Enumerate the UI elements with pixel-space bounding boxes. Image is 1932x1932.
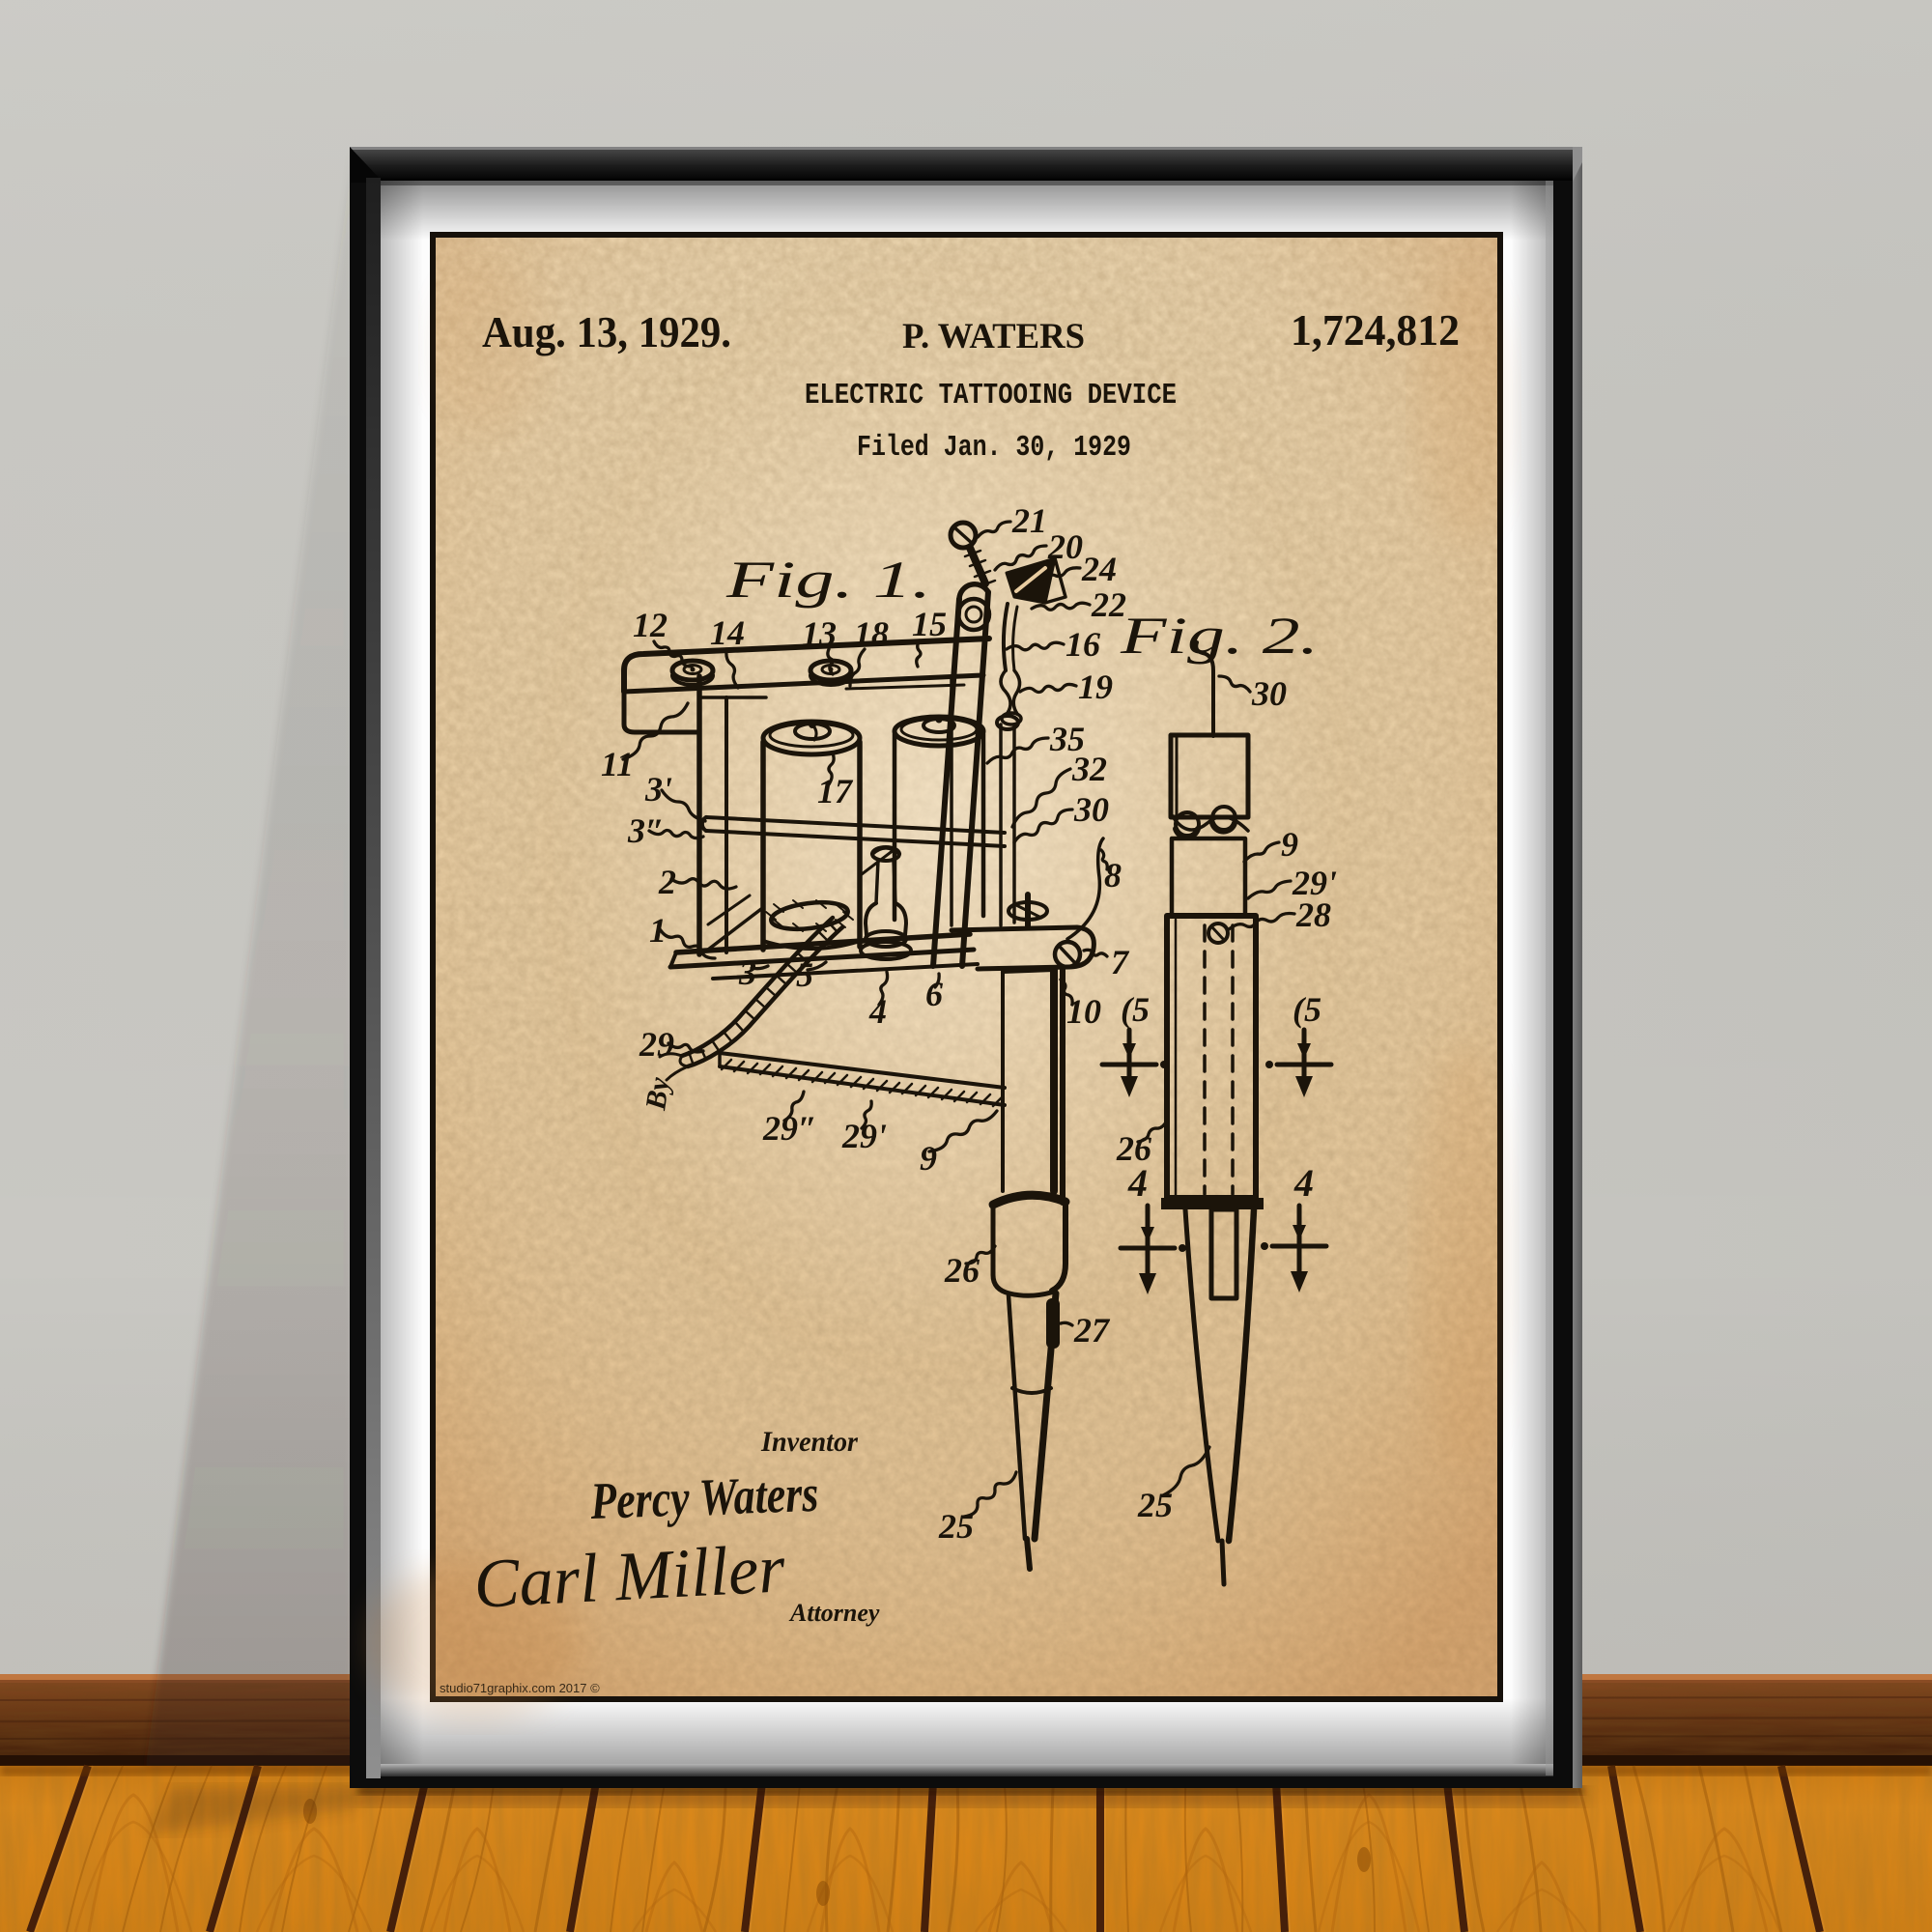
svg-text:3″: 3″ xyxy=(627,811,665,850)
svg-text:19: 19 xyxy=(1078,668,1113,706)
svg-text:20: 20 xyxy=(1047,527,1083,566)
svg-text:Aug. 13, 1929.: Aug. 13, 1929. xyxy=(482,307,731,356)
svg-text:28: 28 xyxy=(1295,895,1331,934)
svg-text:5: 5 xyxy=(796,955,813,994)
svg-text:12: 12 xyxy=(633,606,668,644)
svg-text:(5: (5 xyxy=(1293,990,1321,1029)
svg-text:1,724,812: 1,724,812 xyxy=(1291,306,1460,355)
svg-text:29″: 29″ xyxy=(762,1109,817,1148)
svg-text:Carl Miller: Carl Miller xyxy=(472,1529,788,1623)
svg-text:22: 22 xyxy=(1091,585,1126,624)
svg-text:Percy Waters: Percy Waters xyxy=(589,1464,820,1530)
svg-text:27: 27 xyxy=(1073,1311,1111,1350)
svg-text:Attorney: Attorney xyxy=(788,1599,880,1627)
svg-text:4: 4 xyxy=(868,992,887,1031)
svg-text:24: 24 xyxy=(1081,550,1117,588)
svg-text:21: 21 xyxy=(1011,501,1047,540)
svg-text:Fig. 1.: Fig. 1. xyxy=(725,551,931,609)
svg-text:Filed Jan. 30, 1929: Filed Jan. 30, 1929 xyxy=(857,431,1131,465)
svg-text:29: 29 xyxy=(639,1025,674,1064)
svg-text:8: 8 xyxy=(1104,856,1122,895)
svg-text:30: 30 xyxy=(1251,674,1287,713)
svg-text:10: 10 xyxy=(1066,992,1101,1031)
svg-text:32: 32 xyxy=(1071,750,1107,788)
svg-text:6: 6 xyxy=(925,975,943,1013)
svg-text:studio71graphix.com 2017 ©: studio71graphix.com 2017 © xyxy=(440,1681,600,1695)
svg-text:18: 18 xyxy=(854,614,889,653)
svg-text:15: 15 xyxy=(912,605,947,643)
svg-text:30: 30 xyxy=(1073,790,1109,829)
svg-text:(5: (5 xyxy=(1121,990,1150,1029)
svg-text:3': 3' xyxy=(644,770,672,809)
svg-text:26: 26 xyxy=(944,1251,980,1290)
svg-text:14: 14 xyxy=(710,613,745,652)
svg-text:P. WATERS: P. WATERS xyxy=(902,317,1085,356)
svg-text:2: 2 xyxy=(658,863,676,901)
svg-text:13: 13 xyxy=(802,614,837,653)
svg-text:4: 4 xyxy=(1127,1161,1148,1205)
svg-text:25: 25 xyxy=(938,1507,974,1546)
svg-text:By: By xyxy=(639,1075,676,1113)
svg-text:Inventor: Inventor xyxy=(760,1426,858,1458)
svg-text:7: 7 xyxy=(1111,943,1130,981)
svg-text:3: 3 xyxy=(738,953,756,992)
svg-text:29': 29' xyxy=(841,1117,887,1155)
svg-text:16: 16 xyxy=(1065,625,1100,664)
svg-text:25: 25 xyxy=(1137,1486,1173,1524)
svg-text:ELECTRIC TATTOOING DEVICE: ELECTRIC TATTOOING DEVICE xyxy=(805,379,1177,412)
svg-text:11: 11 xyxy=(601,745,634,783)
svg-text:Fig. 2.: Fig. 2. xyxy=(1120,607,1319,665)
svg-text:1: 1 xyxy=(649,911,667,950)
svg-text:17: 17 xyxy=(817,772,854,810)
svg-text:9: 9 xyxy=(920,1139,937,1178)
svg-text:9: 9 xyxy=(1281,825,1298,864)
svg-text:4: 4 xyxy=(1293,1161,1314,1205)
